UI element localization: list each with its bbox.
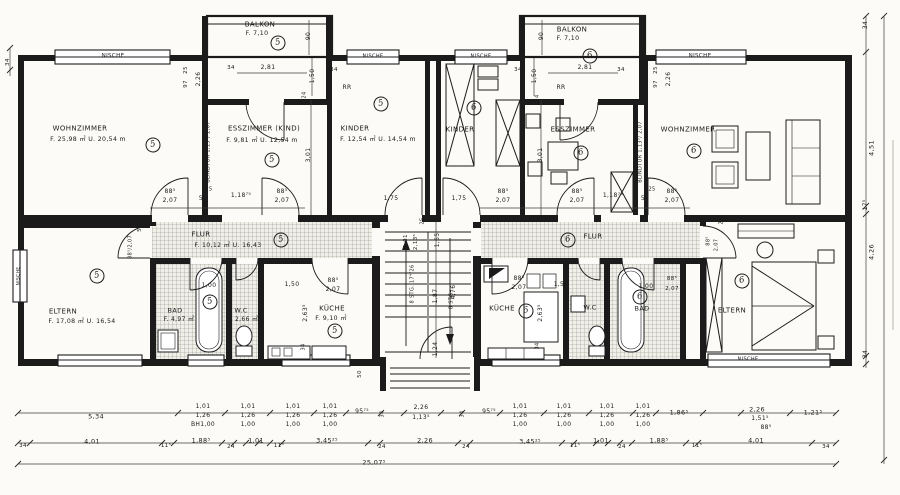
label-dim-25-top-right: 25 [654,66,660,74]
label-dim-door-wohnr-a: 88⁵ [666,189,677,195]
window-dim-col8-row3: 1,00 [636,422,651,428]
label-dim-124-entry: 1,24 [433,342,439,357]
apartment-number-eltern-right: 6 [733,272,751,290]
label-nische-top-right: NISCHE [689,54,712,60]
apartment-number-bad-right: 6 [631,288,649,306]
label-wohnzimmer-right-name: WOHNZIMMER [661,126,716,133]
label-eltern-right-name: ELTERN [718,307,746,314]
label-dim-175-right-col: 17⁵ [863,199,869,210]
window-dim-col5-row1: 1,01 [513,404,528,410]
label-b2-34-l: 34 [19,444,27,450]
label-dim-2635-left: 2,63⁵ [303,304,309,322]
label-dim-25-doorrow-left: 25 [205,187,212,192]
window-dim-col6-row2: 1,26 [557,413,572,419]
label-rr-right: RR [556,85,565,91]
window-dim-col6-row1: 1,01 [557,404,572,410]
label-dim-24-esszimmer-right: 24 [535,94,540,101]
label-bdim-34r-l: 34 [380,410,385,417]
label-nische-kinder-left: NISCHE [363,54,384,59]
label-dim-door-elternl: 88⁵/2,07 [128,235,133,259]
label-dim-34-kueche-left: 34 [301,343,306,350]
label-blindtur-left: BLINDTUR 1,13⁵/ 2,07 [206,121,211,183]
label-nische-top-left: NISCHE [102,54,125,60]
window-dim-col1-row2: 1,26 [196,413,211,419]
label-bdim-1135: 1,13⁵ [412,415,430,421]
label-flur-right-name: FLUR [584,233,603,240]
label-b2-115-b: 11⁵ [274,444,284,450]
label-dim-281-right: 2,81 [578,65,593,71]
label-b2-115-d: 11⁵ [692,444,702,450]
label-esszimmer-kind-area: F. 9,81 ㎡ U. 12,54 m [226,138,298,145]
label-dim-2135-stair: 2,13⁵ [414,234,420,250]
label-dim-226-top-right: 2,26 [666,72,672,87]
label-kueche-left-name: KÜCHE [319,305,345,312]
label-dim-2635-right: 2,63⁵ [538,304,544,322]
label-balkon-left-name: BALKON [245,21,276,28]
window-dim-col5-row2: 1,26 [513,413,528,419]
window-dim-col4-row3: 1,00 [323,422,338,428]
label-dim-101-stair: 1,01 [404,234,410,248]
window-dim-col4-row2: 1,26 [323,413,338,419]
label-rr-left: RR [342,85,351,91]
label-wc-left-name: W.C [234,308,247,315]
label-dim-door-essk-a: 88⁵ [276,189,287,195]
label-b2-401-r: 4,01 [748,438,764,445]
label-b2-101-r: 1,01 [593,438,609,445]
apartment-number-eltern-left: 5 [88,267,106,285]
label-eltern-left-area: F. 17,08 ㎡ U. 16,54 [48,319,115,326]
window-dim-col7-row2: 1,26 [600,413,615,419]
window-dim-col7-row1: 1,01 [600,404,615,410]
label-dim-25-stair: 25 [420,217,425,224]
label-dim-56-left: 56 [199,196,207,202]
label-dim-door-kuechel-b: 2,07 [326,287,341,293]
label-dim-34-right-top: 34 [863,21,869,29]
label-dim-175-left: 1,75 [384,196,399,202]
label-dim-25-top-left: 25 [184,66,190,74]
label-dim-100-bad-left: 1,00 [202,283,217,289]
label-dim-door-wohnl-b: 2,07 [163,198,178,204]
label-b2-34-r: 34 [822,445,830,451]
label-wohnzimmer-left-area: F. 25,98 ㎡ U. 20,54 m [50,137,126,144]
label-esszimmer-kind-name: ESSZIMMER (KIND) [228,125,300,132]
label-dim-door-badr-b: 2,07 [665,287,679,293]
label-dim-door-kinderm-a: 88⁵ [497,189,508,195]
label-dim-97-top-right: 97 [654,80,660,88]
label-dim-50-flur-left: 50 [138,224,144,232]
label-dim-97-top-left: 97 [184,80,190,88]
window-dim-col2-row2: 1,26 [241,413,256,419]
label-dim-150-balkon-left: 1,50 [310,69,316,84]
window-dim-col8-row1: 1,01 [636,404,651,410]
label-dim-door-wohnr-b: 2,07 [665,198,680,204]
label-dim-door-elternr-b: 2,07 [714,239,719,252]
label-bad-left-name: BAD [168,308,183,315]
label-dim-281-left: 2,81 [261,65,276,71]
label-dim-150-kueche-right: 1,50 [554,282,569,288]
label-dim-451-right: 4,51 [869,140,876,156]
label-bad-right-name: BAD [635,306,650,313]
label-dim-door-essr-b: 2,07 [570,198,585,204]
label-esszimmer-right-name: ESSZIMMER [551,126,596,133]
apartment-number-kueche-right: 6 [517,302,535,320]
label-eltern-left-name: ELTERN [49,308,77,315]
label-dim-door-wohnl-a: 88⁵ [164,189,175,195]
apartment-number-kueche-left: 5 [326,322,344,340]
floor-plan-canvas: NISCHE34BALKONF. 7,109025972,26342,811,5… [0,0,900,495]
label-b2-115-c: 11⁵ [570,444,580,450]
label-b2-34525-r: 3,45²⁵ [519,439,541,446]
label-dim-34-kueche-right: 34 [535,342,540,349]
label-kinder-left-area: F. 12,54 ㎡ U. 14,54 m [340,137,416,144]
label-dim-476-stair: 4,76 [451,285,457,300]
label-dim-door-kuechel-a: 88⁵ [327,278,338,284]
label-stair-text-1: 8 STG. 17⁴/26 [410,264,415,303]
label-b2-34525-l: 3,45²⁵ [316,438,338,445]
window-dim-col5-row3: 1,00 [513,422,528,428]
window-dim-col4-row1: 1,01 [323,404,338,410]
label-dim-56-right: 56 [641,196,649,202]
label-dim-165-stair: 1,65 [435,233,441,248]
window-dim-col1-row1: 1,01 [196,404,211,410]
label-kueche-right-name: KÜCHE [489,305,515,312]
label-dim-25-elternr: 25 [719,217,724,224]
label-dim-301-right: 3,01 [538,148,544,163]
label-bdim-9575-r: 95⁷⁵ [482,409,496,415]
label-blindtur-right: BLINDTUR 1,13⁵/ 2,07 [638,121,643,183]
label-layer: NISCHE34BALKONF. 7,109025972,26342,811,5… [0,0,900,495]
label-dim-187-stair: 1,87 [433,289,439,304]
label-dim-118-left: 1,18⁷⁵ [231,193,251,199]
label-bdim-1865: 1,86⁵ [670,410,689,417]
label-bdim-1515: 1,51⁵ [751,416,769,422]
window-dim-col3-row3: 1,00 [286,422,301,428]
apartment-number-wohnzimmer-left: 5 [144,136,162,154]
label-bad-left-area: F. 4,97 ㎡ [164,317,195,323]
label-dim-226-top-left: 2,26 [196,72,202,87]
apartment-number-wohnzimmer-right: 6 [685,142,703,160]
label-dim-34-right-bottom: 34 [863,350,869,358]
label-b2-24-d: 24 [618,445,626,451]
label-bdim-885-r: 88⁵ [760,425,771,431]
window-dim-col7-row3: 1,00 [600,422,615,428]
window-dim-col8-row2: 1,26 [636,413,651,419]
label-dim-301-left: 3,01 [306,148,312,163]
label-dim-door-essk-b: 2,07 [275,198,290,204]
label-nische-kinder-mid: NISCHE [471,54,492,59]
label-dim-90-balkon-left: 90 [306,32,312,40]
label-nische-left-wall: NISCHE [18,266,23,285]
window-dim-col3-row1: 1,01 [286,404,301,410]
label-dim-118-right: 1,18⁷⁵ [603,193,623,199]
label-balkon-right-name: BALKON [557,26,588,33]
label-b2-24-a: 24 [227,445,235,451]
label-b2-101-l: 1,01 [248,438,264,445]
label-balkon-left-area: F. 7,10 [246,31,269,38]
label-dim-426-right: 4,26 [869,244,876,260]
label-dim-175-mid: 1,75 [452,196,467,202]
apartment-number-flur-right: 6 [559,231,577,249]
label-dim-24-esszimmer-kind: 24 [302,91,307,98]
label-b2-1885-r: 1,88⁵ [650,438,669,445]
label-kinder-left-name: KINDER [341,125,370,132]
label-b2-1885-l: 1,88⁵ [192,438,211,445]
label-dim-34-balkon-right-a: 34 [514,68,522,74]
label-kueche-left-area: F. 9,10 ㎡ [315,316,347,323]
label-b3-25075: 25,07⁵ [362,460,385,467]
label-kinder-mid-name: KINDER [446,126,475,133]
label-dim-door-kuecher-a: 88⁵ [513,276,524,282]
label-dim-door-kinderm-b: 2,07 [496,198,511,204]
label-dim-34-left-wall: 34 [6,58,12,66]
apartment-number-balkon-right: 6 [581,47,599,65]
label-b2-401-l: 4,01 [84,439,100,446]
window-dim-col2-row1: 1,01 [241,404,256,410]
label-dim-34-balkon-left-b: 34 [330,68,338,74]
apartment-number-flur-left: 5 [272,231,290,249]
apartment-number-kinder-left: 5 [372,95,390,113]
label-b2-226: 2,26 [417,438,433,445]
label-dim-90-balkon-right: 90 [539,32,545,40]
label-b2-24-c: 24 [462,445,470,451]
label-dim-34-balkon-left-a: 34 [227,66,235,72]
label-flur-left-area: F. 10,12 ㎡ U. 16,43 [194,243,261,250]
label-balkon-right-area: F. 7,10 [557,36,580,43]
apartment-number-esszimmer-kind: 5 [263,151,281,169]
label-bdim-534: 5,34 [88,414,104,421]
window-dim-col3-row2: 1,26 [286,413,301,419]
label-dim-150-wc-left: 1,50 [285,282,300,288]
label-dim-50-entry-left: 50 [358,370,364,378]
label-dim-door-elternr-a: 88⁵ [706,236,711,245]
apartment-number-kinder-mid: 6 [465,99,483,117]
label-b2-24-b: 24 [378,445,386,451]
label-bdim-9575-l: 95⁷⁵ [355,409,369,415]
window-dim-col1-row3: BH1,00 [191,422,215,428]
apartment-number-balkon-left: 5 [269,34,287,52]
label-dim-34-balkon-right-b: 34 [617,68,625,74]
label-dim-150-balkon-right: 1,50 [532,69,538,84]
label-dim-door-kuecher-b: 2,07 [512,285,527,291]
label-dim-door-badr-a: 88⁵ [667,277,677,283]
apartment-number-bad-left: 5 [201,293,219,311]
label-wohnzimmer-left-name: WOHNZIMMER [53,125,108,132]
label-nische-eltern-right: NISCHE [738,357,759,362]
label-flur-left-name: FLUR [192,231,211,238]
label-bdim-226-top: 2,26 [414,405,429,411]
window-dim-col2-row3: 1,00 [241,422,256,428]
label-wc-right-name: W.C [583,305,596,312]
window-dim-col6-row3: 1,00 [557,422,572,428]
label-bdim-34r-r: 34 [460,410,465,417]
label-bdim-1215: 1,21⁵ [804,410,823,417]
label-bdim-226-r: 2,26 [749,407,765,414]
label-dim-25-doorrow-right: 25 [648,187,655,192]
label-dim-door-essr-a: 88⁵ [571,189,582,195]
label-wc-left-area: F. 2,66 ㎡ [228,317,259,323]
label-b2-115-a: 11⁵ [161,444,171,450]
apartment-number-esszimmer-right: 6 [572,144,590,162]
